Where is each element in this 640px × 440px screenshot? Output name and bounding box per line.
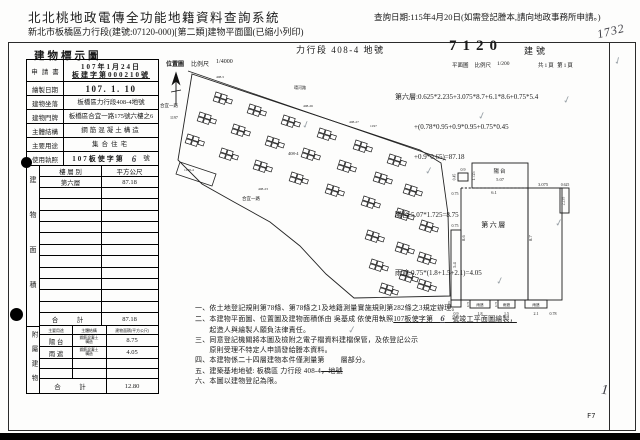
dim-3-075: 3.075 <box>538 182 549 187</box>
area-empty-rows <box>40 188 158 313</box>
note-2-cont: 起造人與繪製人願負法律責任。 <box>195 325 595 335</box>
scan-edge-strip <box>0 433 640 440</box>
dim-6-1: 6.1 <box>491 190 497 195</box>
empty-row <box>40 279 158 290</box>
binder-hole-mark <box>21 157 32 168</box>
annex-structure-balcony: 鋼筋混凝土構造 <box>72 335 106 347</box>
map-label-408-5: 408-5 <box>216 75 224 79</box>
floor-plan-header: 平面圖 比例尺 1/200 <box>452 61 510 69</box>
building-form-table: 申請書 107年1月24日 板建字第000210號 繪製日期 107. 1. 1… <box>26 59 159 394</box>
area-floor-value: 87.18 <box>101 177 158 188</box>
map-label-408-26: 408-26 <box>303 104 313 108</box>
map-label-408-23: 408-23 <box>258 187 268 191</box>
struck-text: ，地號 <box>321 367 343 375</box>
note-4: 四、本建物係二十四層建物本件僅測量第層部分。 <box>195 355 595 365</box>
area-col-sqm: 平方公尺 <box>101 166 158 177</box>
area-section-vertical-label: 建物面積 <box>27 166 40 326</box>
floor-label: 第六層 <box>481 220 507 229</box>
area-total-value: 87.18 <box>101 313 158 326</box>
balcony-label: 陽台 <box>493 167 506 175</box>
form-row-address: 建物門牌 板橋區合宜一路175號六樓之6 <box>27 110 158 124</box>
main-use: 集合住宅 <box>92 141 130 149</box>
empty-row <box>40 290 158 301</box>
map-label-road-south: 合宜一路 <box>242 195 260 202</box>
frame-inner-divider <box>609 42 610 431</box>
query-date: 查詢日期:115年4月20日(如需登記謄本,請向地政事務所申請。) <box>374 11 601 23</box>
note-5: 五、建築基地地號: 板橋區 力行段 408-4，地號 <box>195 366 595 376</box>
license-number: 6 <box>132 155 137 163</box>
land-section-label: 力行段 408-4 地號 <box>296 43 385 56</box>
annex-col-structure: 主體結構 <box>72 326 106 335</box>
note-3-cont: 原則受理不特定人申請發給謄本資料。 <box>195 345 595 355</box>
dim-2-235: 2.235 <box>562 197 566 206</box>
annex-area-canopy: 4.05 <box>106 347 158 359</box>
empty-row <box>40 245 158 256</box>
area-total-label: 合 計 <box>40 313 101 326</box>
calc-floor-line1: 第六層:0.625*2.235+3.075*8.7+6.1*8.6+0.75*5… <box>395 92 538 102</box>
empty-row <box>40 199 158 210</box>
map-label-1197-b: 1197 <box>370 124 377 128</box>
dim-1-725: 1.725 <box>471 172 476 181</box>
empty-row <box>40 369 158 379</box>
plan-title: 平面圖 <box>452 61 469 69</box>
note-6: 六、本圖以建物登記為限。 <box>195 376 595 386</box>
building-address: 板橋區合宜一路175號六樓之6 <box>69 113 154 121</box>
area-floor-name: 第六層 <box>40 177 101 188</box>
page-count: 共1頁 第1頁 <box>538 61 574 69</box>
form-row-application: 申請書 107年1月24日 板建字第000210號 <box>27 60 158 82</box>
binder-hole-mark <box>10 308 23 321</box>
form-label: 主要用途 <box>27 138 64 151</box>
license-prefix: 107板使字第 <box>72 155 125 163</box>
empty-row <box>40 359 158 369</box>
floor-plan-drawing: 陽台 5.07 1.725 0.9 0.45 0.75 0.75 6.1 3.0… <box>448 158 580 320</box>
map-label-408-4: 408-4 <box>288 151 299 156</box>
annex-use-canopy: 雨 遮 <box>40 347 72 359</box>
dim-0-9-top: 0.9 <box>461 167 466 172</box>
form-label: 主體結構 <box>27 124 64 137</box>
dim-5-4: 5.4 <box>452 261 457 267</box>
note-1: 一、依土地登記規則第78條、第78條之1及地籍測量實施規則第282條之3規定辦理… <box>195 303 595 313</box>
building-number-label: 建號 <box>524 44 548 57</box>
query-system-page: 北北桃地政電傳全功能地籍資料查詢系統 查詢日期:115年4月20日(如需登記謄本… <box>0 0 640 440</box>
document-subtitle: 新北市板橋區力行段(建號:07120-000)[第二類]建物平面圖(已縮小列印) <box>28 25 303 38</box>
plan-scale-label: 比例尺 <box>475 61 492 69</box>
annex-area-balcony: 8.75 <box>106 335 158 347</box>
form-row-location: 建物坐落 板橋區力行段408-4地號 <box>27 96 158 110</box>
dim-0-625: 0.625 <box>561 183 570 187</box>
empty-row <box>40 222 158 233</box>
empty-row <box>40 302 158 313</box>
page-code: F7 <box>587 412 595 420</box>
north-arrow-icon <box>171 73 181 104</box>
annex-total-label: 合 計 <box>40 379 106 393</box>
empty-row <box>40 233 158 244</box>
annex-col-use: 主要用途 <box>40 326 72 335</box>
map-label-road-north: 環河路 <box>294 84 306 90</box>
annex-total-value: 12.80 <box>106 379 158 393</box>
balcony-outline <box>472 163 528 188</box>
building-location: 板橋區力行段408-4地號 <box>77 99 144 107</box>
note-2: 二、本建物平面圖、位置圖及建物面積係由 吳基成 依使用執照107板使字第 6 號… <box>195 313 595 324</box>
right-room-outline <box>528 188 562 300</box>
handwritten-1732: 1732 <box>596 21 627 42</box>
annex-col-area: 建物面積(平方公尺) <box>106 326 158 335</box>
system-title: 北北桃地政電傳全功能地籍資料查詢系統 <box>28 7 280 26</box>
dim-8-6: 8.6 <box>461 234 466 240</box>
annex-use-balcony: 陽 台 <box>40 335 72 347</box>
map-label-road-west: 合宜一路 <box>160 102 178 109</box>
map-label-1197: 1197 <box>170 115 178 120</box>
form-row-structure: 主體結構 鋼筋混凝土構造 <box>27 124 158 138</box>
empty-row <box>40 256 158 267</box>
adjacent-lot <box>176 162 216 186</box>
form-label: 申請書 <box>27 60 64 81</box>
form-label: 建物門牌 <box>27 110 64 123</box>
empty-row <box>40 188 158 199</box>
form-row-license: 使用執照 107板使字第 6 號 <box>27 152 158 166</box>
form-row-use: 主要用途 集合住宅 <box>27 138 158 152</box>
form-label: 建物坐落 <box>27 96 64 109</box>
empty-row <box>40 268 158 279</box>
main-room-outline <box>461 188 528 300</box>
check-mark: ✓ <box>347 324 357 336</box>
form-label: 繪製日期 <box>27 82 64 95</box>
form-label: 使用執照 <box>27 152 64 165</box>
check-mark: ✓ <box>424 165 434 177</box>
application-number: 板建字第000210號 <box>72 71 150 79</box>
dim-5-07: 5.07 <box>496 177 505 182</box>
annex-section-vertical-label: 附屬建物 <box>27 326 40 393</box>
notes-block: 一、依土地登記規則第78條、第78條之1及地籍測量實施規則第282條之3規定辦理… <box>195 303 595 386</box>
plan-scale: 1/200 <box>497 61 510 69</box>
empty-row <box>40 211 158 222</box>
note-3: 三、同意登記機關將本圖及檢附之電子檔資料建檔保管，及依登記公示 <box>195 335 595 345</box>
dim-0-45: 0.45 <box>453 174 457 181</box>
top-left-box <box>458 173 468 181</box>
dim-0-75-a: 0.75 <box>452 191 459 196</box>
application-date: 107年1月24日 <box>81 63 141 71</box>
annex-structure-canopy: 鋼筋混凝土構造 <box>72 347 106 359</box>
map-label-1198-4: 1198-4 <box>184 168 194 172</box>
map-label-408-27: 408-27 <box>349 120 359 124</box>
main-structure: 鋼筋混凝土構造 <box>81 127 141 135</box>
drawn-date: 107. 1. 10 <box>86 85 137 93</box>
dim-0-75-b: 0.75 <box>452 223 459 228</box>
license-suffix: 號 <box>143 155 150 163</box>
calc-floor-line2: +(0.78*0.95+0.9*0.95+0.75*0.45 <box>395 122 538 132</box>
form-row-drawn-date: 繪製日期 107. 1. 10 <box>27 82 158 96</box>
building-number: 7120 <box>449 38 503 55</box>
area-col-floor: 樓 層 別 <box>40 166 101 177</box>
dim-8-7: 8.7 <box>528 234 533 240</box>
